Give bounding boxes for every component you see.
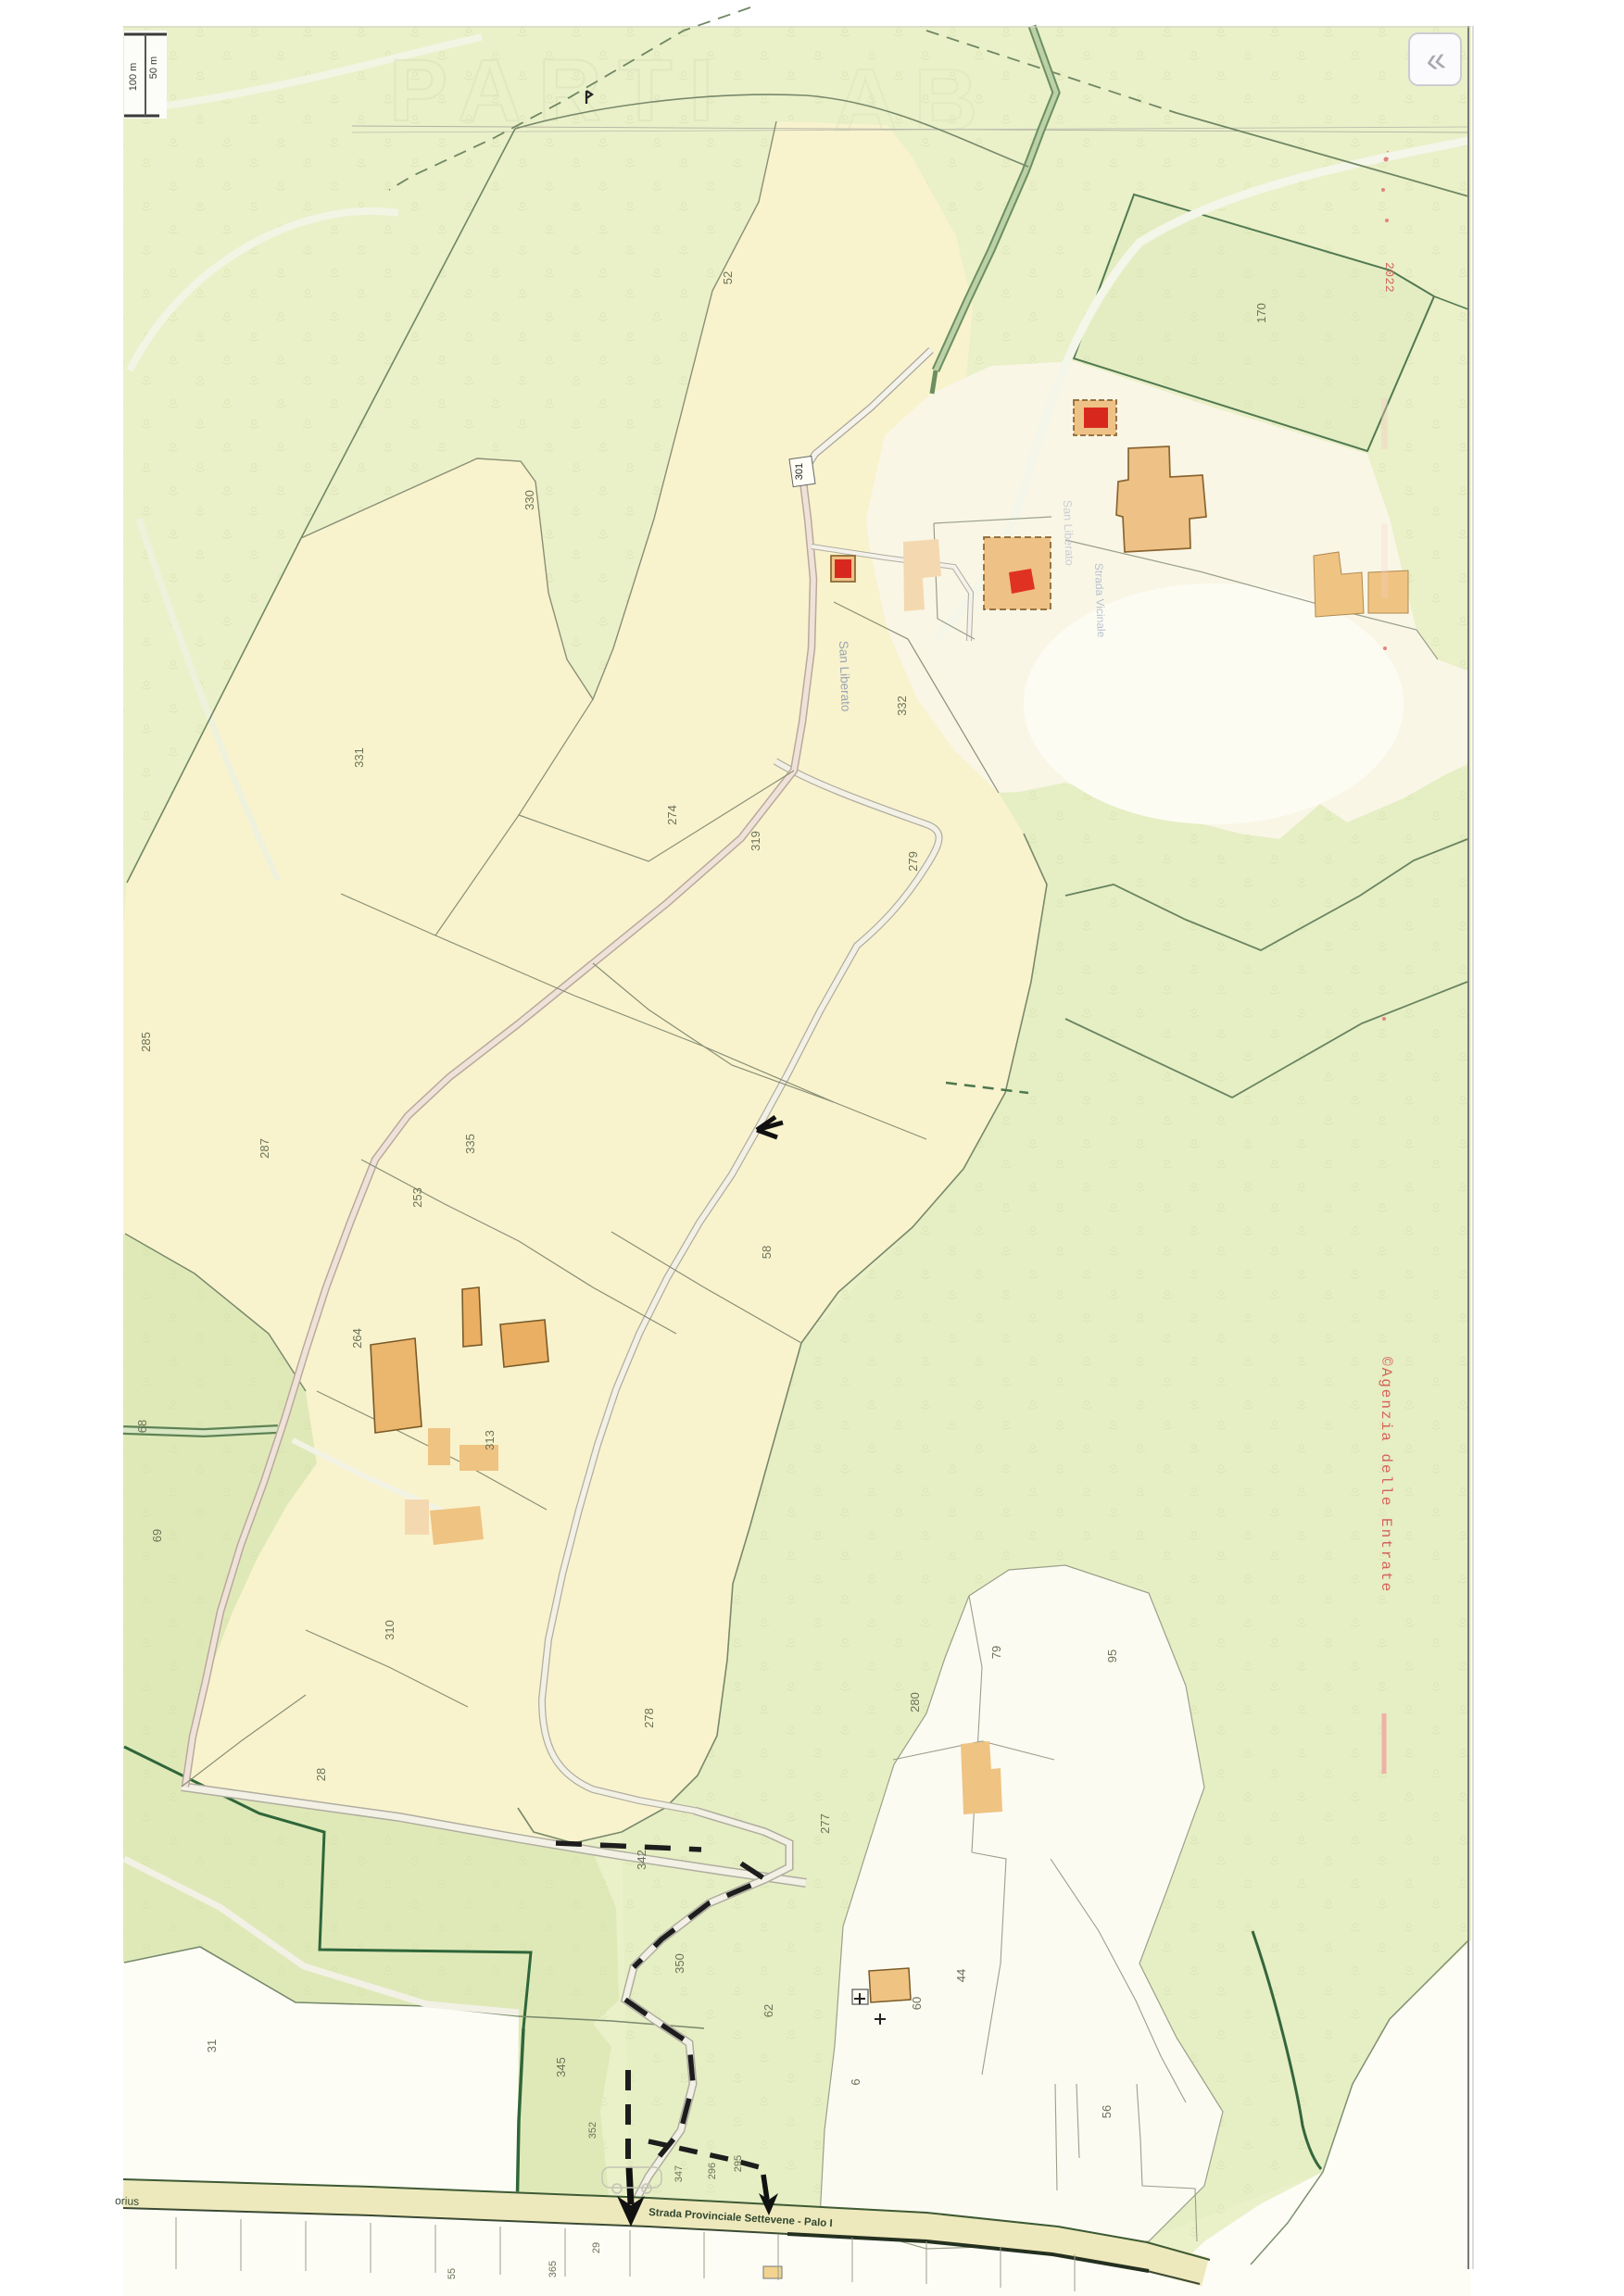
svg-text:295: 295: [733, 2155, 744, 2172]
svg-text:52: 52: [721, 271, 735, 284]
svg-text:44: 44: [954, 1969, 968, 1982]
svg-text:29: 29: [591, 2242, 602, 2253]
svg-text:350: 350: [673, 1953, 686, 1974]
svg-text:335: 335: [463, 1134, 477, 1154]
svg-text:PARTI: PARTI: [389, 42, 730, 140]
svg-text:69: 69: [150, 1529, 164, 1542]
svg-text:278: 278: [642, 1708, 656, 1728]
svg-text:60: 60: [910, 1997, 924, 2010]
svg-text:253: 253: [410, 1187, 424, 1208]
svg-text:365: 365: [548, 2261, 559, 2277]
svg-text:©Agenzia delle Entrate: ©Agenzia delle Entrate: [1378, 1357, 1394, 1593]
svg-text:170: 170: [1254, 303, 1268, 323]
svg-text:2022: 2022: [1382, 262, 1396, 293]
svg-text:56: 56: [1100, 2105, 1114, 2118]
svg-text:AB: AB: [834, 51, 994, 149]
svg-text:264: 264: [350, 1328, 364, 1349]
svg-text:28: 28: [314, 1768, 328, 1781]
svg-text:347: 347: [674, 2165, 685, 2182]
svg-text:330: 330: [522, 490, 536, 510]
svg-text:San Liberato: San Liberato: [1061, 500, 1076, 566]
svg-text:310: 310: [383, 1620, 397, 1640]
svg-text:100 m: 100 m: [128, 63, 139, 92]
svg-text:332: 332: [895, 696, 909, 716]
svg-text:280: 280: [908, 1692, 922, 1713]
svg-text:342: 342: [635, 1850, 648, 1870]
svg-text:352: 352: [587, 2122, 598, 2139]
svg-text:31: 31: [205, 2039, 219, 2052]
svg-text:301: 301: [794, 463, 805, 480]
svg-text:345: 345: [554, 2057, 568, 2077]
svg-text:274: 274: [665, 805, 679, 825]
svg-text:79: 79: [989, 1646, 1003, 1659]
svg-text:279: 279: [906, 851, 920, 872]
svg-text:58: 58: [760, 1246, 774, 1259]
svg-text:95: 95: [1105, 1650, 1119, 1662]
svg-text:319: 319: [749, 831, 762, 851]
svg-text:orius: orius: [115, 2194, 139, 2208]
svg-text:313: 313: [483, 1430, 497, 1450]
svg-text:62: 62: [762, 2004, 775, 2017]
svg-text:6: 6: [849, 2078, 862, 2085]
svg-text:296: 296: [707, 2163, 718, 2179]
svg-text:Strada Vicinale: Strada Vicinale: [1092, 563, 1108, 638]
svg-text:50 m: 50 m: [148, 56, 159, 79]
svg-text:285: 285: [139, 1032, 153, 1052]
svg-text:331: 331: [352, 747, 366, 768]
svg-text:San Liberato: San Liberato: [837, 641, 853, 712]
svg-text:55: 55: [447, 2268, 458, 2279]
svg-text:277: 277: [818, 1813, 832, 1834]
svg-text:287: 287: [258, 1138, 271, 1159]
svg-text:68: 68: [135, 1420, 149, 1433]
